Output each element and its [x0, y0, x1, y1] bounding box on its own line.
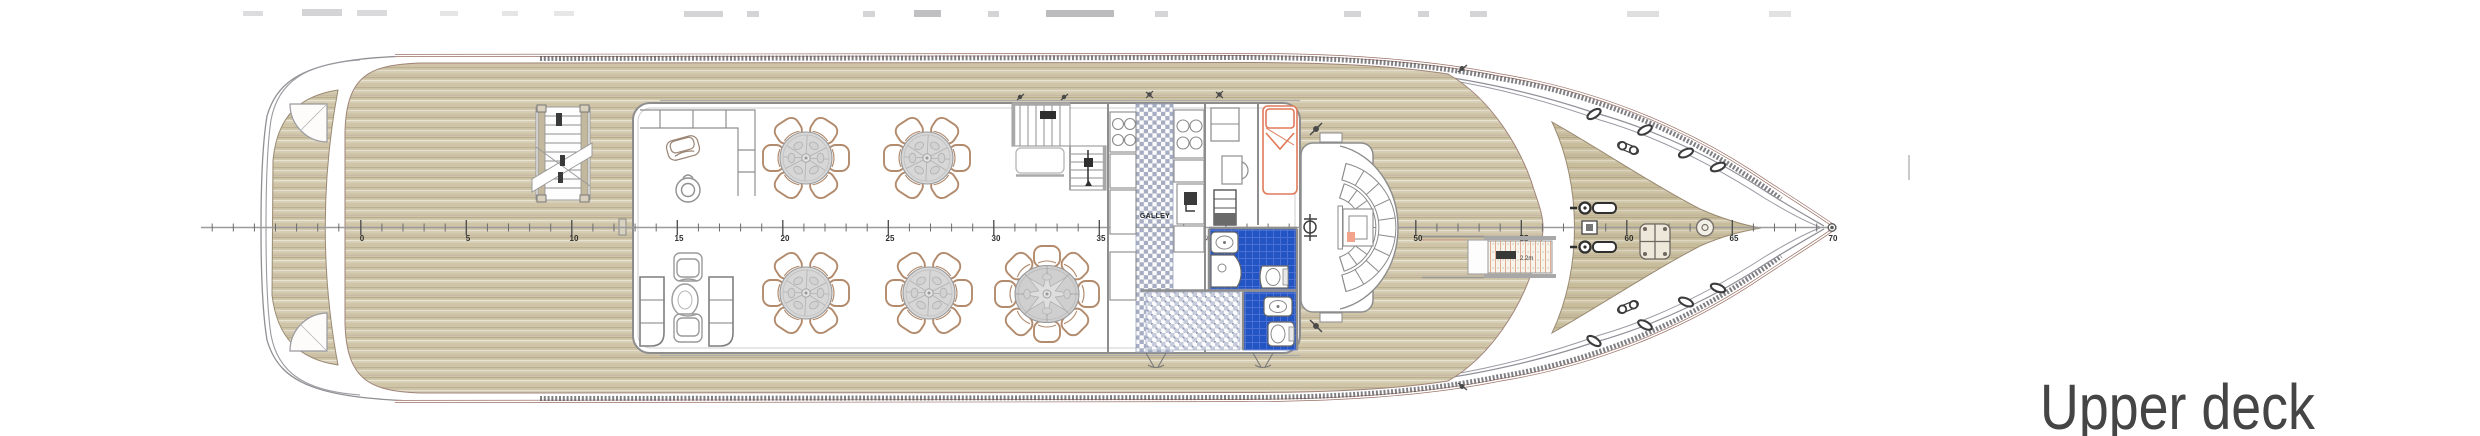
svg-text:10: 10: [570, 234, 579, 243]
svg-text:20: 20: [781, 234, 790, 243]
svg-text:35: 35: [1097, 234, 1106, 243]
svg-text:2.2m: 2.2m: [1520, 256, 1533, 262]
svg-text:15: 15: [675, 234, 684, 243]
svg-text:30: 30: [992, 234, 1001, 243]
svg-text:65: 65: [1730, 234, 1739, 243]
svg-text:25: 25: [886, 234, 895, 243]
svg-text:0: 0: [360, 234, 365, 243]
svg-text:50: 50: [1414, 234, 1423, 243]
svg-text:Upper deck: Upper deck: [2040, 371, 2315, 436]
svg-text:5: 5: [466, 234, 471, 243]
svg-text:70: 70: [1829, 234, 1838, 243]
svg-text:GALLEY: GALLEY: [1140, 213, 1170, 220]
svg-text:60: 60: [1625, 234, 1634, 243]
